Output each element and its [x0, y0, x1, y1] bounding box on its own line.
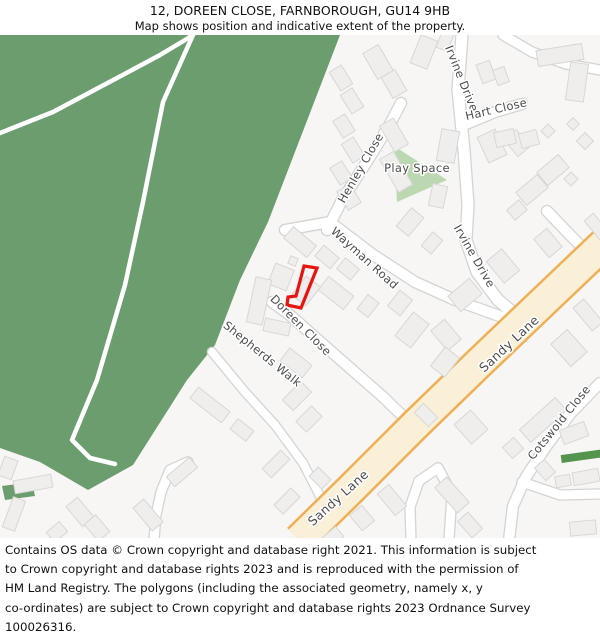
- attribution-line: co-ordinates) are subject to Crown copyr…: [5, 599, 595, 618]
- report-header: 12, DOREEN CLOSE, FARNBOROUGH, GU14 9HB …: [0, 0, 600, 35]
- page-subtitle: Map shows position and indicative extent…: [0, 19, 600, 34]
- attribution-line: Contains OS data © Crown copyright and d…: [5, 541, 595, 560]
- map-canvas: Henley CloseIrvine DriveHart ClosePlay S…: [0, 35, 600, 538]
- attribution: Contains OS data © Crown copyright and d…: [0, 538, 600, 625]
- page-title: 12, DOREEN CLOSE, FARNBOROUGH, GU14 9HB: [0, 3, 600, 19]
- street-label: Play Space: [384, 161, 450, 175]
- attribution-line: 100026316.: [5, 618, 595, 637]
- attribution-line: HM Land Registry. The polygons (includin…: [5, 579, 595, 598]
- building: [555, 474, 572, 487]
- attribution-line: to Crown copyright and database rights 2…: [5, 560, 595, 579]
- building: [569, 520, 596, 536]
